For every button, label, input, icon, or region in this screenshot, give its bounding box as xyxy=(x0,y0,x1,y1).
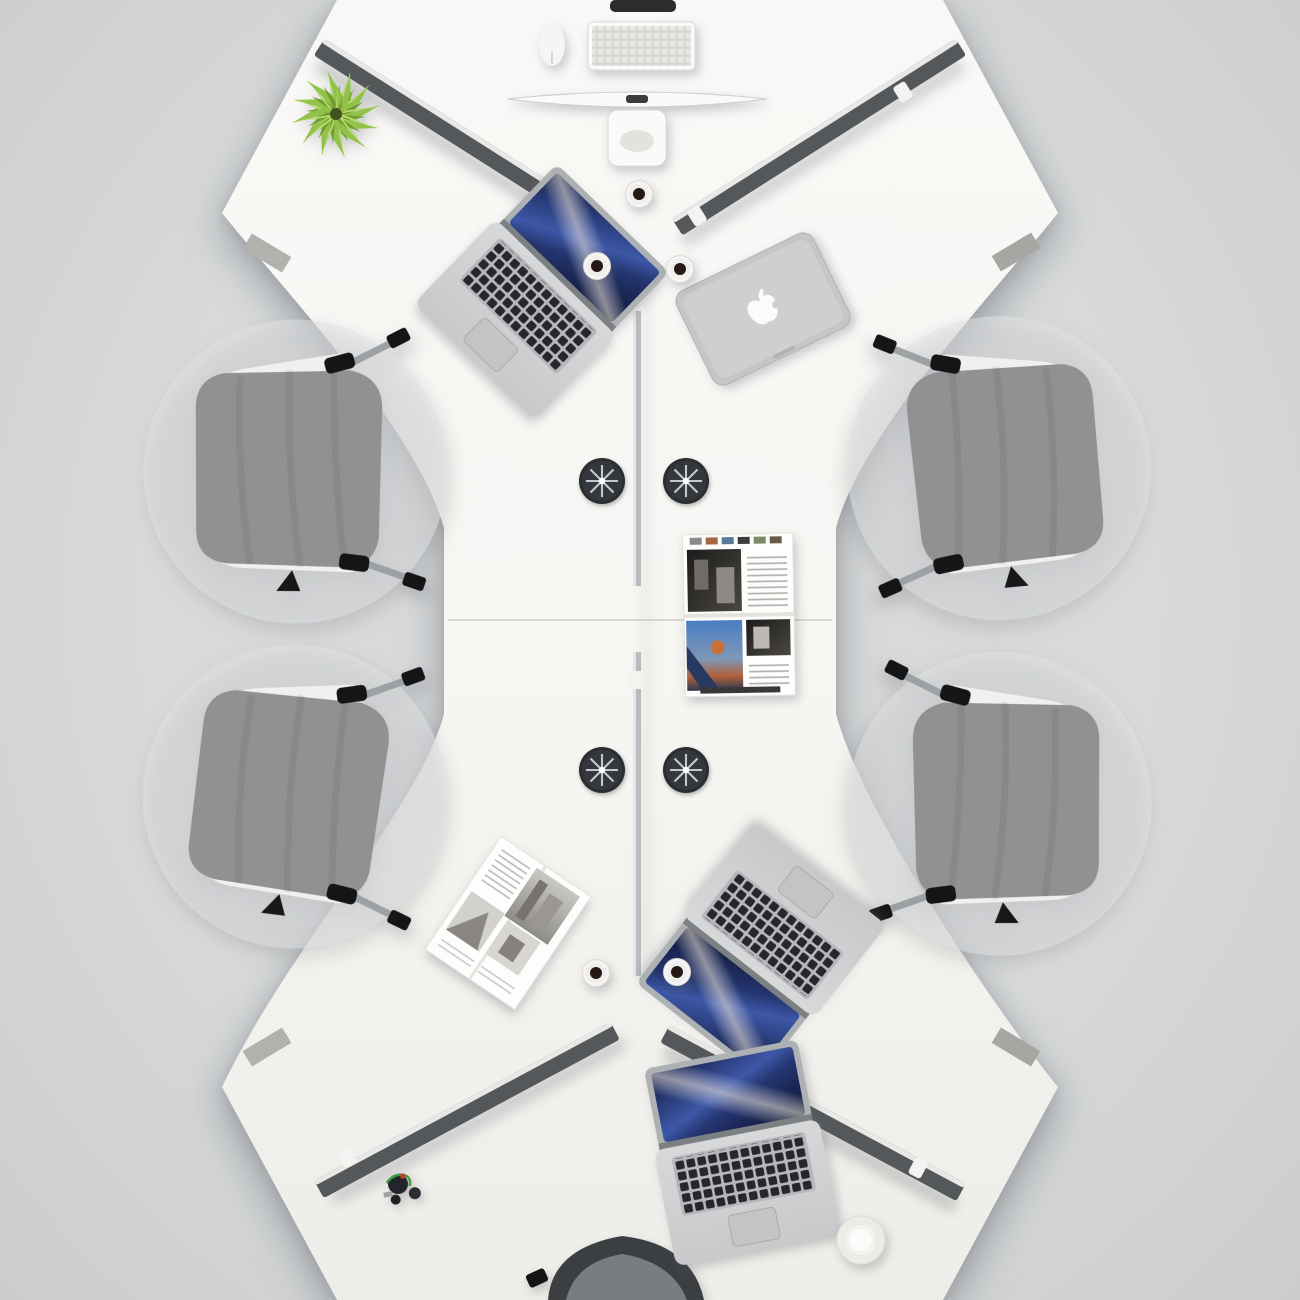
cable-grommet-bottom-left xyxy=(579,747,625,793)
photo-detail xyxy=(716,567,735,603)
coffee-cup-lower-left xyxy=(583,960,610,987)
monitor-camera-slot xyxy=(626,95,648,103)
plant-center xyxy=(330,108,342,120)
office-workstation-photo xyxy=(0,0,1300,1300)
cable-grommet-top-right xyxy=(663,458,709,504)
coffee-cup-upper-left xyxy=(584,253,611,280)
magazine-text-column xyxy=(747,552,788,607)
coffee-cup-lower-right xyxy=(664,959,691,986)
keyboard-keys xyxy=(592,26,691,66)
monitor-stand-detail xyxy=(620,130,654,152)
cup-with-saucer xyxy=(837,1216,885,1264)
magazine-open-center xyxy=(683,533,796,697)
cable-grommet-top-left xyxy=(579,458,625,504)
coffee-cup-top-center xyxy=(626,181,653,208)
coffee-cup-upper-right xyxy=(667,256,694,283)
photo-detail xyxy=(753,626,769,648)
spine-highlight xyxy=(633,652,636,976)
chair-back-edge xyxy=(610,0,676,12)
office-chair-right-bottom xyxy=(840,644,1159,963)
white-keyboard xyxy=(588,22,695,70)
scene-canvas xyxy=(0,0,1300,1300)
cable-grommet-bottom-right xyxy=(663,747,709,793)
photo-detail xyxy=(694,560,709,590)
magazine-text-column xyxy=(749,661,789,686)
magazine-photo-color xyxy=(686,620,743,691)
panel-clip xyxy=(630,671,644,689)
